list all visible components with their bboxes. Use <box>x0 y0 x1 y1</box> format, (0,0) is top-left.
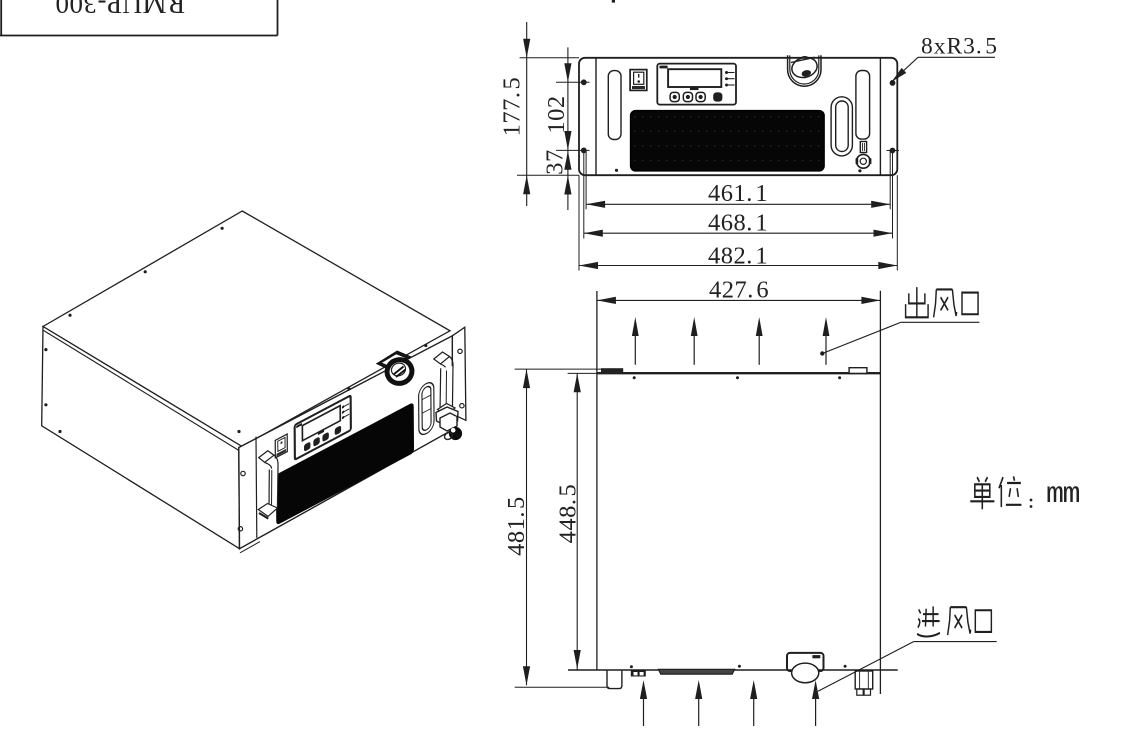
svg-text:RMUP-300: RMUP-300 <box>55 0 185 19</box>
svg-text:102: 102 <box>543 95 570 133</box>
svg-text:468.1: 468.1 <box>708 210 768 237</box>
svg-text:481.5: 481.5 <box>503 496 530 556</box>
svg-text:8xR3.5: 8xR3.5 <box>921 34 998 60</box>
svg-text:448.5: 448.5 <box>555 484 582 544</box>
svg-text:461.1: 461.1 <box>708 180 768 207</box>
svg-text:177.5: 177.5 <box>499 77 526 137</box>
svg-text:37: 37 <box>542 149 569 175</box>
svg-text:482.1: 482.1 <box>708 243 768 270</box>
svg-text:mm: mm <box>1046 478 1080 512</box>
svg-text:427.6: 427.6 <box>709 277 769 304</box>
